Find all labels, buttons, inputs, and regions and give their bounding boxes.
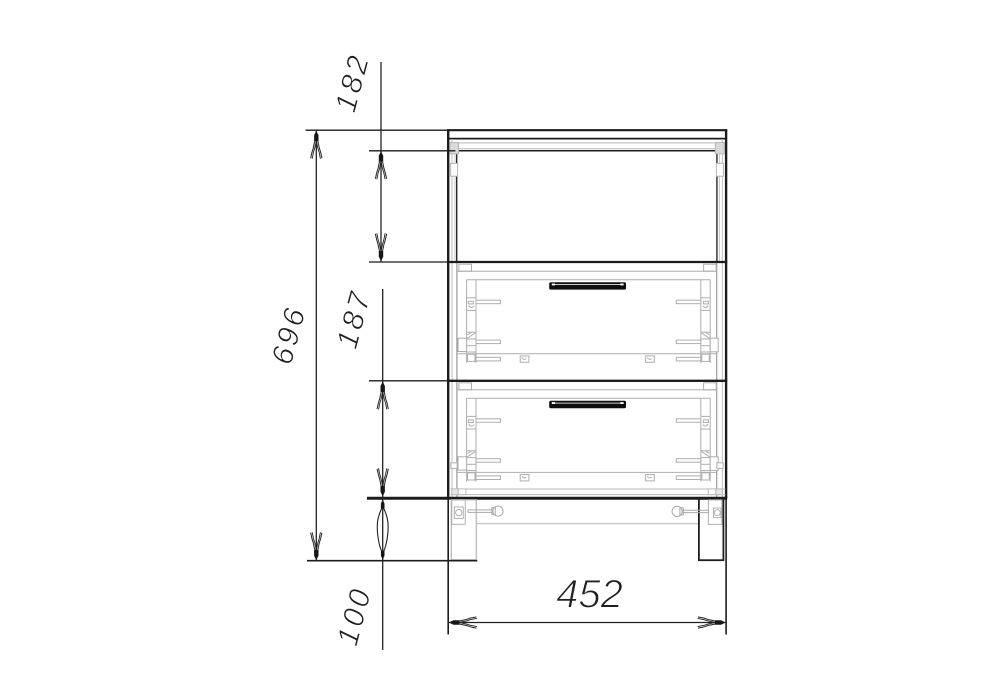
svg-text:452: 452 <box>556 573 623 617</box>
